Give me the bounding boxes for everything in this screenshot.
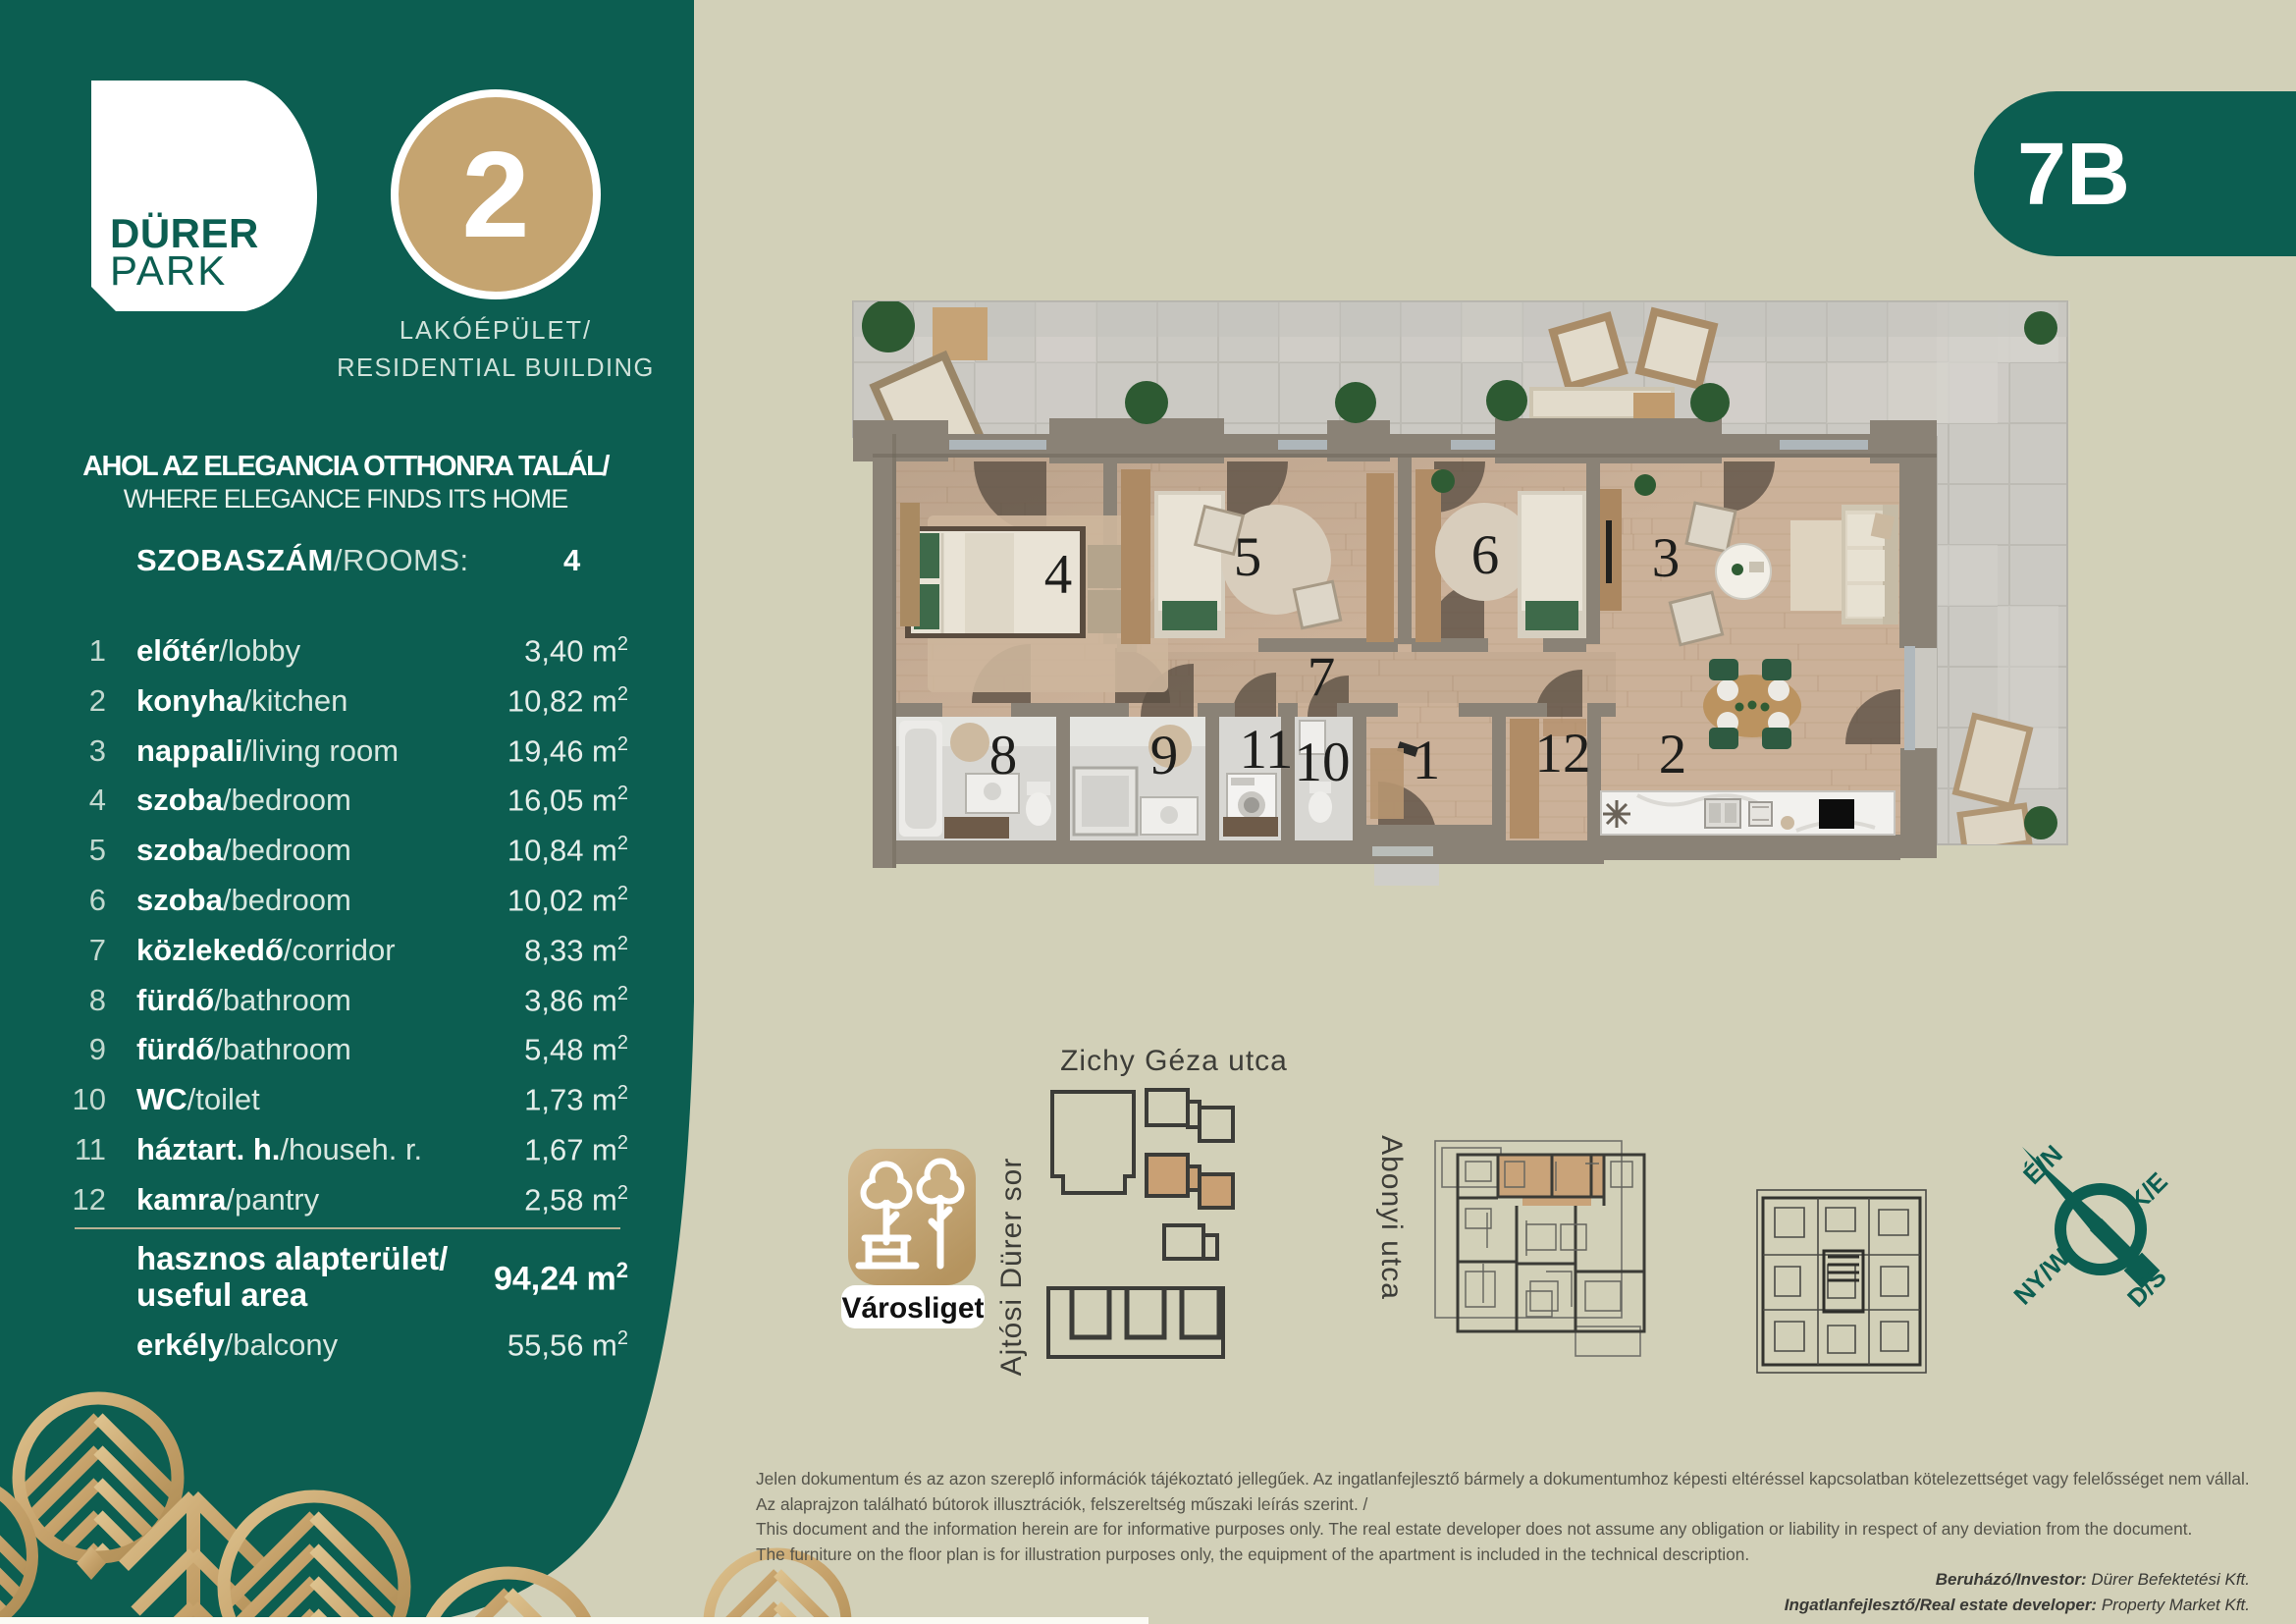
svg-text:Abonyi utca: Abonyi utca (1375, 1135, 1408, 1300)
svg-text:3: 3 (1652, 527, 1681, 589)
svg-text:WHERE ELEGANCE FINDS ITS HOME: WHERE ELEGANCE FINDS ITS HOME (124, 484, 568, 514)
svg-text:7: 7 (1308, 646, 1336, 708)
svg-text:8: 8 (989, 725, 1018, 786)
svg-text:SZOBASZÁM/ROOMS:: SZOBASZÁM/ROOMS: (136, 543, 469, 577)
svg-text:Városliget: Városliget (841, 1292, 984, 1325)
svg-text:4: 4 (1044, 544, 1073, 606)
svg-text:1: 1 (1413, 730, 1441, 791)
svg-text:AHOL AZ ELEGANCIA OTTHONRA TAL: AHOL AZ ELEGANCIA OTTHONRA TALÁL/ (82, 449, 610, 482)
svg-text:10: 10 (1295, 731, 1351, 793)
svg-text:11: 11 (1240, 719, 1294, 781)
svg-text:5: 5 (1234, 526, 1262, 588)
svg-text:PARK: PARK (110, 247, 227, 294)
svg-text:LAKÓÉPÜLET/: LAKÓÉPÜLET/ (400, 316, 592, 345)
svg-text:6: 6 (1471, 524, 1500, 586)
svg-text:RESIDENTIAL BUILDING: RESIDENTIAL BUILDING (337, 354, 655, 382)
svg-text:Ajtósi Dürer sor: Ajtósi Dürer sor (995, 1158, 1028, 1377)
svg-text:2: 2 (462, 128, 530, 263)
svg-text:Zichy Géza utca: Zichy Géza utca (1060, 1045, 1288, 1077)
svg-text:9: 9 (1150, 725, 1179, 786)
svg-text:4: 4 (563, 543, 581, 577)
svg-text:12: 12 (1535, 723, 1591, 785)
svg-text:2: 2 (1659, 724, 1687, 785)
